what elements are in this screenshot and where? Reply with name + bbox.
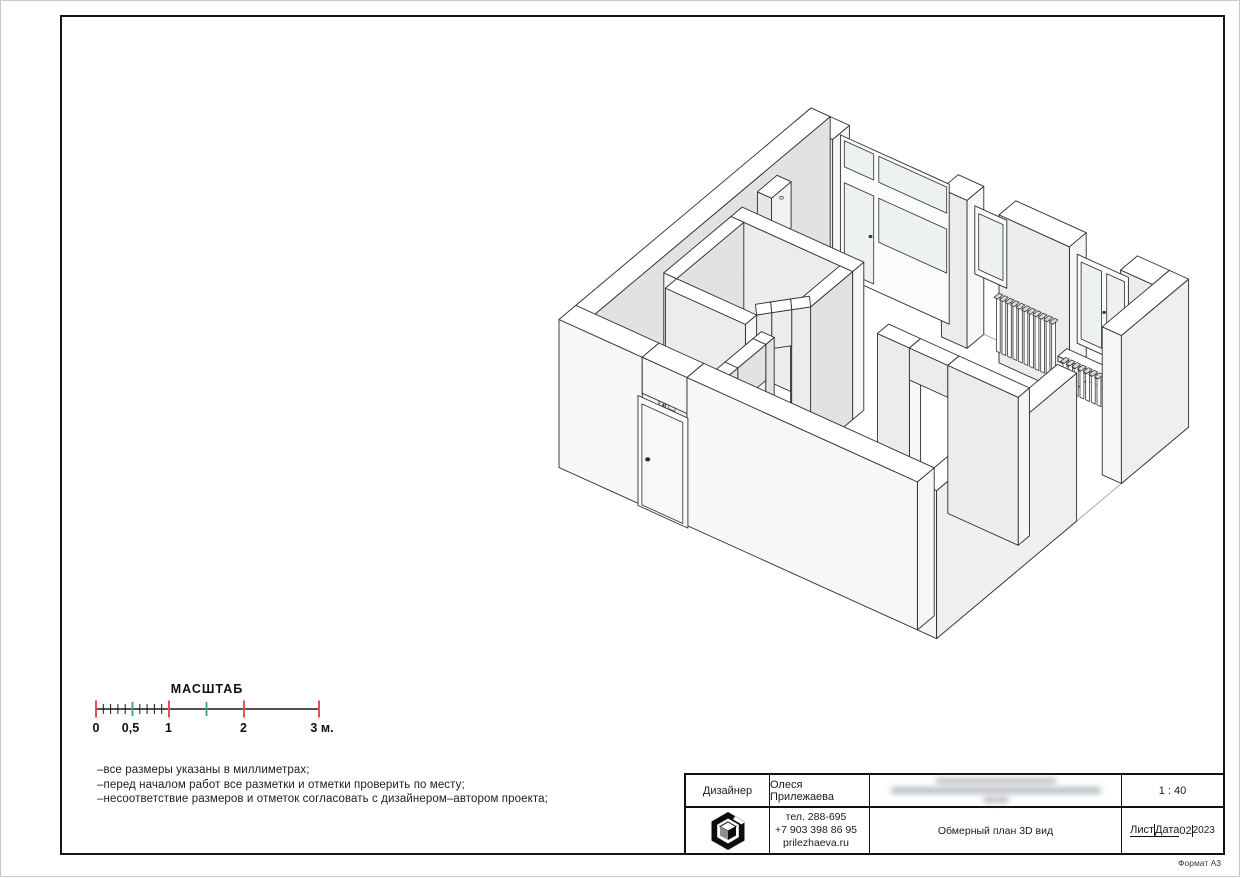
entrance-door [638, 396, 688, 529]
plan-face [1097, 375, 1101, 407]
plan-detail [869, 235, 872, 238]
redacted-text-line [983, 797, 1009, 803]
phone-short: тел. 288-695 [786, 811, 847, 824]
floor-plan-3d-view [1, 1, 1240, 878]
plan-face [1102, 327, 1121, 484]
scale-label-3m: 3 м. [310, 721, 333, 735]
redacted-text-line [936, 778, 1056, 784]
scale-label-1: 1 [165, 721, 172, 735]
sheet-number: 02 [1179, 825, 1192, 837]
note-line: –все размеры указаны в миллиметрах; [97, 763, 548, 778]
designer-label: Дизайнер [686, 775, 770, 808]
designer-name: Олеся Прилежаева [770, 775, 870, 808]
plan-face [1030, 310, 1034, 368]
plan-face [1046, 318, 1050, 376]
scale-label-2: 2 [240, 721, 247, 735]
drawing-sheet: { "page": { "format_label": "Формат А3" … [0, 0, 1240, 877]
plan-face [1008, 300, 1012, 358]
format-label: Формат А3 [1178, 858, 1221, 868]
website: prilezhaeva.ru [783, 837, 849, 850]
date-value: 2023 [1193, 825, 1215, 836]
sheet-date-block: Лист Дата 02 2023 [1122, 808, 1223, 853]
plan-face [772, 310, 792, 349]
plan-face [1019, 305, 1023, 363]
plan-face [853, 262, 864, 419]
scale-label-0: 0 [93, 721, 100, 735]
plan-detail [646, 458, 650, 462]
plan-face [1002, 298, 1006, 356]
plan-face [996, 295, 1000, 353]
plan-face [1041, 315, 1045, 373]
phone-mobile: +7 903 398 86 95 [775, 824, 857, 837]
plan-detail [780, 196, 784, 199]
date-label: Дата [1155, 824, 1179, 837]
scale-value: 1 : 40 [1122, 775, 1223, 808]
plan-face [1018, 388, 1029, 545]
plan-detail [1103, 311, 1106, 313]
logo-cell [686, 808, 770, 853]
plan-face [756, 302, 772, 315]
project-address-redacted [870, 775, 1122, 808]
scale-bar: МАСШТАБ 0 0,5 1 2 3 м. [71, 673, 371, 743]
redacted-text-line [891, 787, 1101, 794]
contact-info: тел. 288-695 +7 903 398 86 95 prilezhaev… [770, 808, 870, 853]
notes: –все размеры указаны в миллиметрах; –пер… [97, 763, 548, 807]
note-line: –перед началом работ все разметки и отме… [97, 778, 548, 793]
plan-face [917, 468, 934, 630]
sheet-label: Лист [1130, 824, 1155, 837]
plan-face [1035, 313, 1039, 371]
plan-face [1081, 262, 1102, 348]
plan-face [1013, 303, 1017, 361]
note-line: –несоответствие размеров и отметок согла… [97, 792, 548, 807]
scale-label-05: 0,5 [122, 721, 139, 735]
title-block: Дизайнер Олеся Прилежаева 1 : 40 тел. 28… [684, 773, 1225, 855]
plan-face [791, 296, 811, 310]
designer-logo-icon [705, 811, 751, 851]
plan-face [642, 404, 683, 524]
plan-face [979, 214, 1003, 281]
plan-face [1024, 308, 1028, 366]
drawing-title: Обмерный план 3D вид [870, 808, 1122, 853]
scale-bar-title: МАСШТАБ [171, 682, 244, 696]
